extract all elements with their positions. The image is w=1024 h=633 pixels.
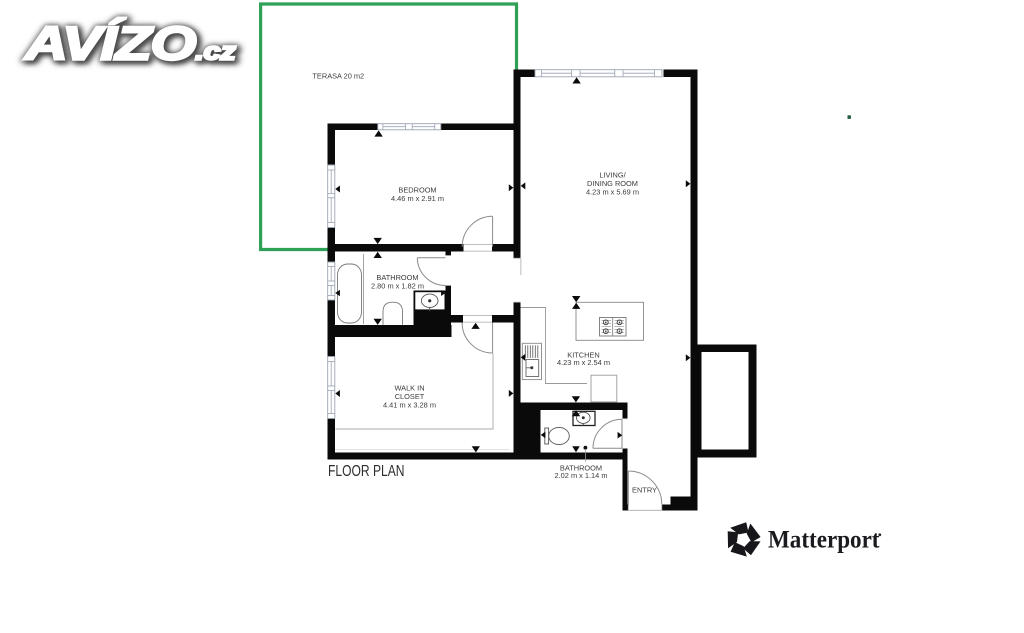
- svg-text:4.41 m x 3.28 m: 4.41 m x 3.28 m: [383, 401, 436, 410]
- svg-text:FLOOR PLAN: FLOOR PLAN: [328, 463, 405, 480]
- svg-text:2.02 m x 1.14 m: 2.02 m x 1.14 m: [555, 471, 608, 480]
- svg-text:4.46 m x 2.91 m: 4.46 m x 2.91 m: [391, 194, 444, 203]
- svg-text:ENTRY: ENTRY: [632, 485, 657, 494]
- svg-text:2.80 m x 1.82 m: 2.80 m x 1.82 m: [371, 282, 424, 291]
- svg-text:4.23 m x 2.54 m: 4.23 m x 2.54 m: [557, 358, 610, 367]
- svg-text:AVÍZO.cz: AVÍZO.cz: [23, 17, 236, 70]
- svg-text:TERASA 20 m2: TERASA 20 m2: [312, 71, 364, 80]
- svg-text:4.23 m x 5.69 m: 4.23 m x 5.69 m: [586, 188, 639, 197]
- svg-text:Matterport: Matterport: [768, 526, 880, 553]
